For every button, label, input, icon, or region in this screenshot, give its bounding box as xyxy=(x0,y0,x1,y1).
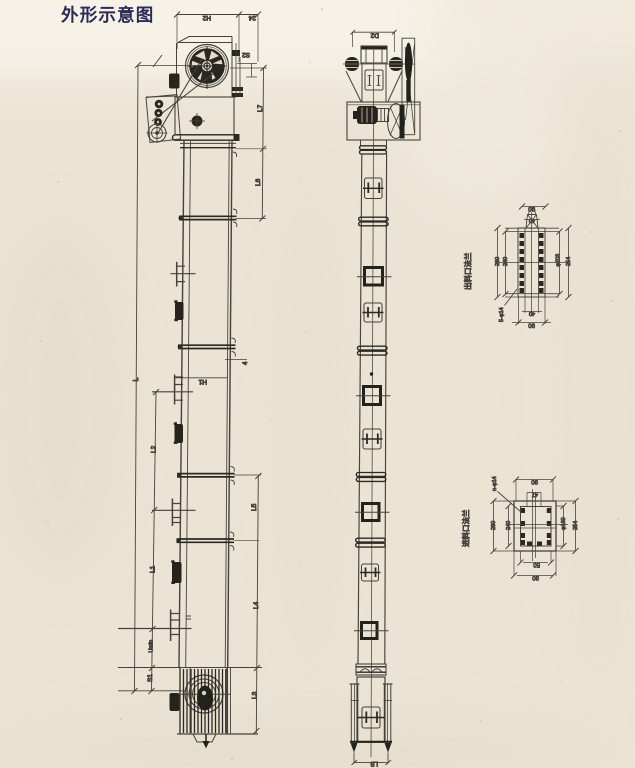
svg-text:240: 240 xyxy=(506,521,512,530)
svg-text:47: 47 xyxy=(532,491,538,497)
svg-text:24: 24 xyxy=(248,14,256,21)
svg-text:260: 260 xyxy=(491,521,497,530)
svg-text:240: 240 xyxy=(503,257,509,266)
svg-text:5-φ14: 5-φ14 xyxy=(499,307,505,322)
svg-text:H1: H1 xyxy=(198,378,207,385)
svg-text:S2: S2 xyxy=(242,51,250,58)
svg-text:90: 90 xyxy=(531,478,538,484)
svg-text:L5: L5 xyxy=(251,503,258,511)
svg-text:进料口法兰: 进料口法兰 xyxy=(461,509,471,547)
svg-text:D2: D2 xyxy=(370,32,379,39)
svg-text:L6: L6 xyxy=(255,178,262,186)
svg-text:φ160: φ160 xyxy=(561,517,567,530)
svg-text:L2: L2 xyxy=(151,445,158,453)
svg-text:40: 40 xyxy=(529,217,535,223)
svg-text:50: 50 xyxy=(533,561,540,567)
svg-text:L4: L4 xyxy=(253,601,260,609)
svg-text:Umin: Umin xyxy=(149,640,155,653)
svg-text:40: 40 xyxy=(529,310,535,316)
svg-text:L7: L7 xyxy=(257,104,264,112)
svg-text:260: 260 xyxy=(495,257,501,266)
svg-text:L3: L3 xyxy=(252,691,259,699)
svg-text:L1: L1 xyxy=(150,565,157,573)
svg-text:90: 90 xyxy=(528,322,535,328)
svg-text:n-φ14: n-φ14 xyxy=(492,476,498,491)
svg-text:LB: LB xyxy=(370,760,378,767)
svg-text:外形示意图: 外形示意图 xyxy=(61,5,155,25)
svg-text:90: 90 xyxy=(532,574,539,580)
svg-text:φ203: φ203 xyxy=(556,254,562,267)
svg-text:90: 90 xyxy=(528,205,535,211)
svg-text:出料口法兰: 出料口法兰 xyxy=(463,252,473,290)
svg-text:S1: S1 xyxy=(147,674,154,682)
svg-text:254: 254 xyxy=(566,257,572,266)
svg-text:L: L xyxy=(133,378,140,382)
svg-text:254: 254 xyxy=(573,521,579,530)
svg-text:H2: H2 xyxy=(202,14,211,21)
